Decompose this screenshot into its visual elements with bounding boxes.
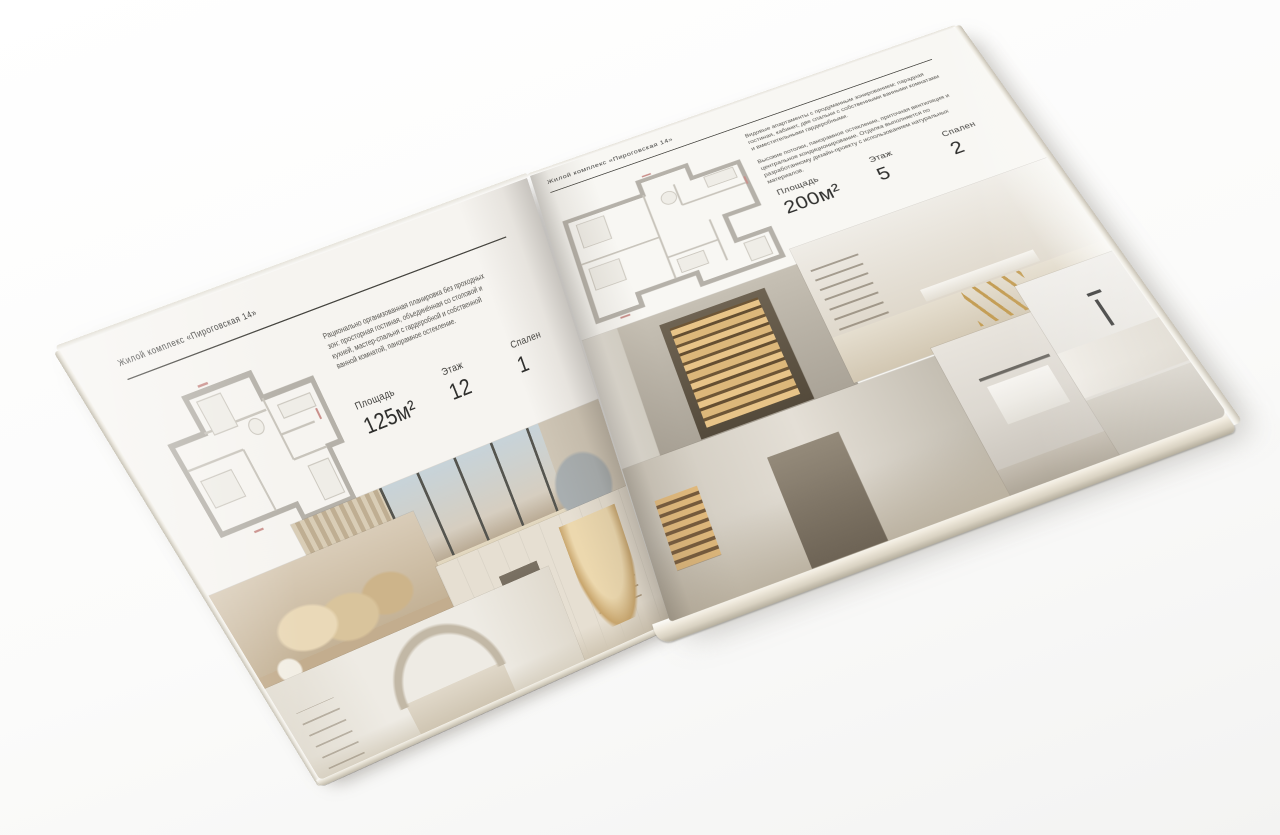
stat-bedrooms: Спален 1 xyxy=(509,328,552,379)
stat-floor: Этаж 5 xyxy=(867,149,906,186)
description-text: Рационально организованная планировка бе… xyxy=(321,269,503,373)
stat-bedrooms: Спален 2 xyxy=(940,120,991,160)
stat-floor-value: 5 xyxy=(873,159,906,185)
brochure-mockup-scene: Жилой комплекс «Пироговская 14» xyxy=(0,0,1280,835)
stat-area: Площадь 125м² xyxy=(353,381,421,440)
stat-floor: Этаж 12 xyxy=(440,359,476,406)
stat-floor-value: 12 xyxy=(446,374,476,407)
